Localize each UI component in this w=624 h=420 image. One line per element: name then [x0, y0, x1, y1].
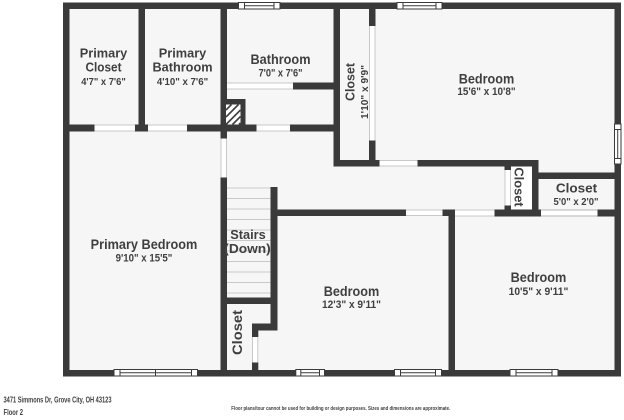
svg-text:15'6" x 10'8": 15'6" x 10'8": [457, 86, 515, 98]
svg-text:Bedroom: Bedroom: [511, 269, 567, 285]
svg-text:(Down): (Down): [224, 241, 271, 256]
svg-text:Closet: Closet: [512, 167, 527, 207]
svg-text:Closet: Closet: [344, 62, 358, 101]
svg-text:Floor 2: Floor 2: [4, 408, 24, 417]
svg-text:Bedroom: Bedroom: [324, 283, 380, 299]
svg-text:5'0" x 2'0": 5'0" x 2'0": [554, 197, 599, 208]
svg-text:Closet: Closet: [230, 309, 245, 355]
svg-text:Primary Bedroom: Primary Bedroom: [91, 236, 198, 252]
svg-text:10'5" x 9'11": 10'5" x 9'11": [509, 286, 569, 298]
svg-text:1'10" x 9'9": 1'10" x 9'9": [360, 65, 371, 119]
svg-text:4'7" x 7'6": 4'7" x 7'6": [81, 76, 126, 88]
svg-text:Primary: Primary: [80, 46, 128, 61]
svg-text:12'3" x 9'11": 12'3" x 9'11": [322, 299, 381, 311]
svg-text:Closet: Closet: [86, 60, 123, 75]
svg-text:Closet: Closet: [556, 182, 598, 196]
svg-text:7'0" x 7'6": 7'0" x 7'6": [259, 68, 303, 80]
svg-text:3471 Simmons Dr, Grove City, O: 3471 Simmons Dr, Grove City, OH 43123: [4, 396, 112, 405]
svg-text:Bedroom: Bedroom: [459, 71, 515, 87]
svg-text:Primary: Primary: [159, 46, 207, 61]
svg-text:4'10" x 7'6": 4'10" x 7'6": [157, 76, 208, 88]
svg-text:Bathroom: Bathroom: [251, 51, 311, 67]
svg-text:Floor plans/tour cannot be use: Floor plans/tour cannot be used for buil…: [231, 406, 451, 412]
svg-text:Bathroom: Bathroom: [153, 60, 213, 75]
svg-text:9'10" x 15'5": 9'10" x 15'5": [116, 253, 173, 265]
svg-text:Stairs: Stairs: [230, 227, 266, 242]
